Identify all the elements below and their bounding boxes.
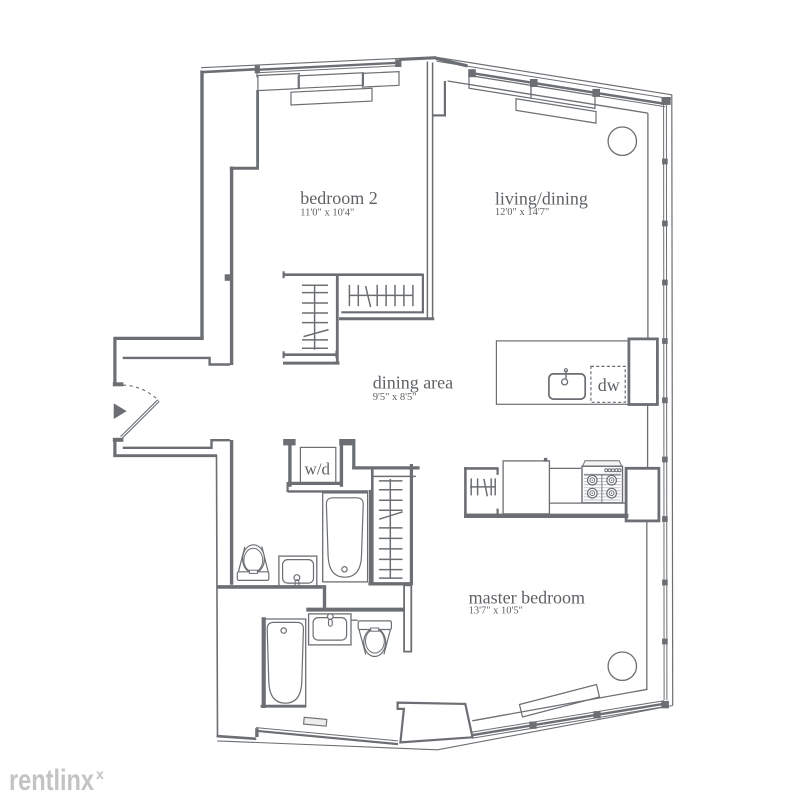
svg-text:13'7" x 10'5": 13'7" x 10'5": [469, 605, 523, 616]
svg-text:x: x: [96, 766, 104, 782]
svg-text:12'0" x 14'7": 12'0" x 14'7": [495, 207, 549, 218]
svg-text:11'0" x 10'4": 11'0" x 10'4": [300, 207, 354, 218]
svg-text:living/dining: living/dining: [495, 189, 588, 209]
svg-text:bedroom 2: bedroom 2: [300, 188, 377, 208]
svg-text:rentlinx: rentlinx: [9, 764, 94, 797]
svg-text:9'5" x 8'5": 9'5" x 8'5": [373, 392, 417, 403]
svg-text:w/d: w/d: [305, 460, 331, 479]
svg-text:dining area: dining area: [373, 373, 453, 393]
svg-text:dw: dw: [598, 375, 620, 395]
